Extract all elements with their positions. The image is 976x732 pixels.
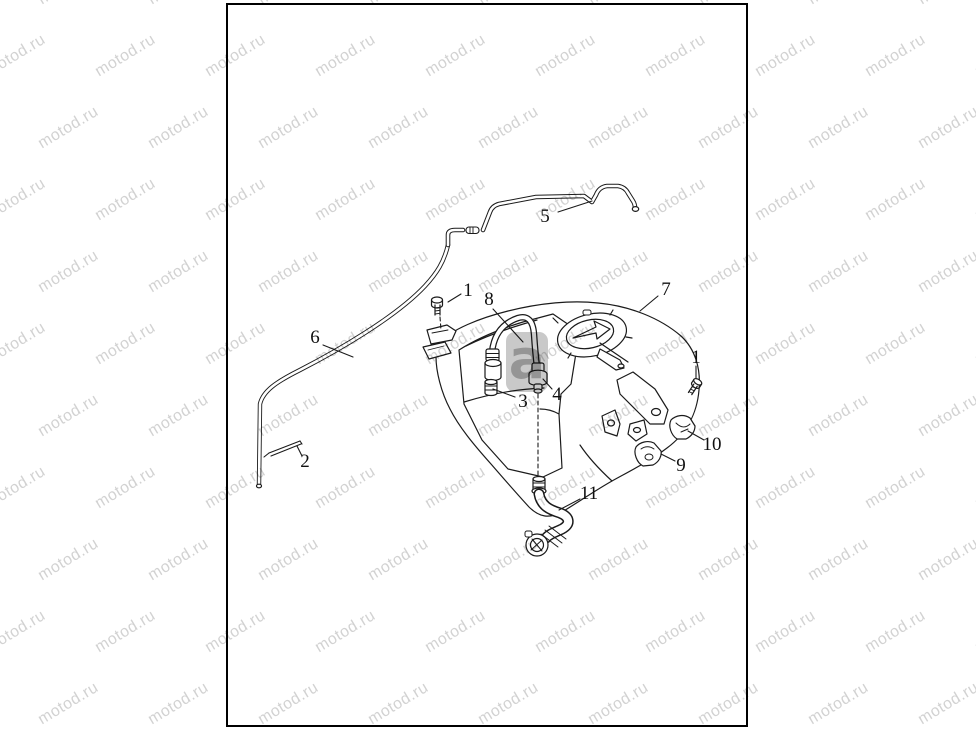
part-2-clip [264,441,302,457]
callout-label-11: 11 [580,483,598,505]
callout-label-1: 1 [463,280,473,302]
callout-label-1: 1 [691,347,701,369]
callout-label-5: 5 [540,206,550,228]
callout-label-8: 8 [484,289,494,311]
callout-label-7: 7 [661,279,671,301]
callout-label-2: 2 [300,451,310,473]
screw-1-left [432,297,443,315]
watermark-logo-letter: a [509,333,545,387]
callout-label-3: 3 [518,391,528,413]
page-background: 51876341210911 a motod.rumotod.rumotod.r… [0,0,976,732]
callout-label-10: 10 [703,434,722,456]
part-10-clip [670,416,695,439]
part-6-vent-hose [257,245,449,488]
callout-label-9: 9 [676,455,686,477]
callout-label-6: 6 [310,327,320,349]
watermark-logo: a [506,332,548,392]
callout-label-4: 4 [552,384,562,406]
parts-diagram [0,0,976,732]
